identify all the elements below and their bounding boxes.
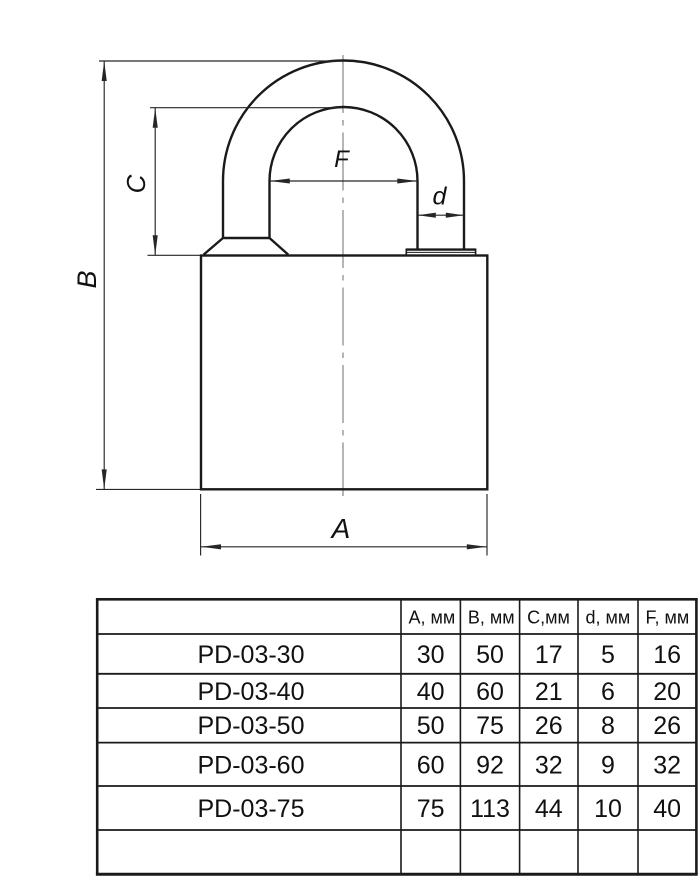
svg-text:10: 10: [594, 795, 622, 823]
svg-text:d: d: [433, 183, 448, 211]
svg-text:60: 60: [417, 751, 445, 779]
svg-text:F: F: [334, 146, 350, 173]
svg-text:60: 60: [476, 678, 504, 706]
svg-text:PD-03-60: PD-03-60: [198, 751, 305, 779]
svg-text:20: 20: [653, 678, 681, 706]
svg-text:50: 50: [417, 712, 445, 740]
svg-text:32: 32: [535, 751, 563, 779]
svg-text:6: 6: [601, 678, 615, 706]
svg-text:B: B: [72, 270, 102, 288]
svg-text:C: C: [121, 174, 151, 193]
svg-text:17: 17: [535, 641, 563, 669]
svg-text:PD-03-40: PD-03-40: [198, 678, 305, 706]
svg-text:26: 26: [535, 712, 563, 740]
svg-text:5: 5: [601, 641, 615, 669]
svg-text:PD-03-75: PD-03-75: [198, 795, 305, 823]
svg-text:32: 32: [653, 751, 681, 779]
svg-text:F, мм: F, мм: [646, 608, 690, 628]
svg-text:PD-03-30: PD-03-30: [198, 641, 305, 669]
svg-text:21: 21: [535, 678, 563, 706]
svg-text:9: 9: [601, 751, 615, 779]
svg-text:А, мм: А, мм: [409, 608, 456, 628]
svg-text:PD-03-50: PD-03-50: [198, 712, 305, 740]
svg-text:8: 8: [601, 712, 615, 740]
svg-text:B, мм: B, мм: [468, 608, 515, 628]
svg-text:A: A: [330, 513, 351, 544]
svg-text:40: 40: [653, 795, 681, 823]
svg-text:d, мм: d, мм: [586, 608, 631, 628]
svg-text:75: 75: [417, 795, 445, 823]
svg-text:С,мм: С,мм: [527, 608, 570, 628]
svg-text:113: 113: [470, 795, 510, 823]
svg-text:26: 26: [653, 712, 681, 740]
svg-text:40: 40: [417, 678, 445, 706]
svg-text:50: 50: [476, 641, 504, 669]
svg-text:75: 75: [476, 712, 504, 740]
svg-text:44: 44: [535, 795, 563, 823]
svg-text:16: 16: [653, 641, 681, 669]
svg-text:30: 30: [417, 641, 445, 669]
svg-text:92: 92: [476, 751, 504, 779]
